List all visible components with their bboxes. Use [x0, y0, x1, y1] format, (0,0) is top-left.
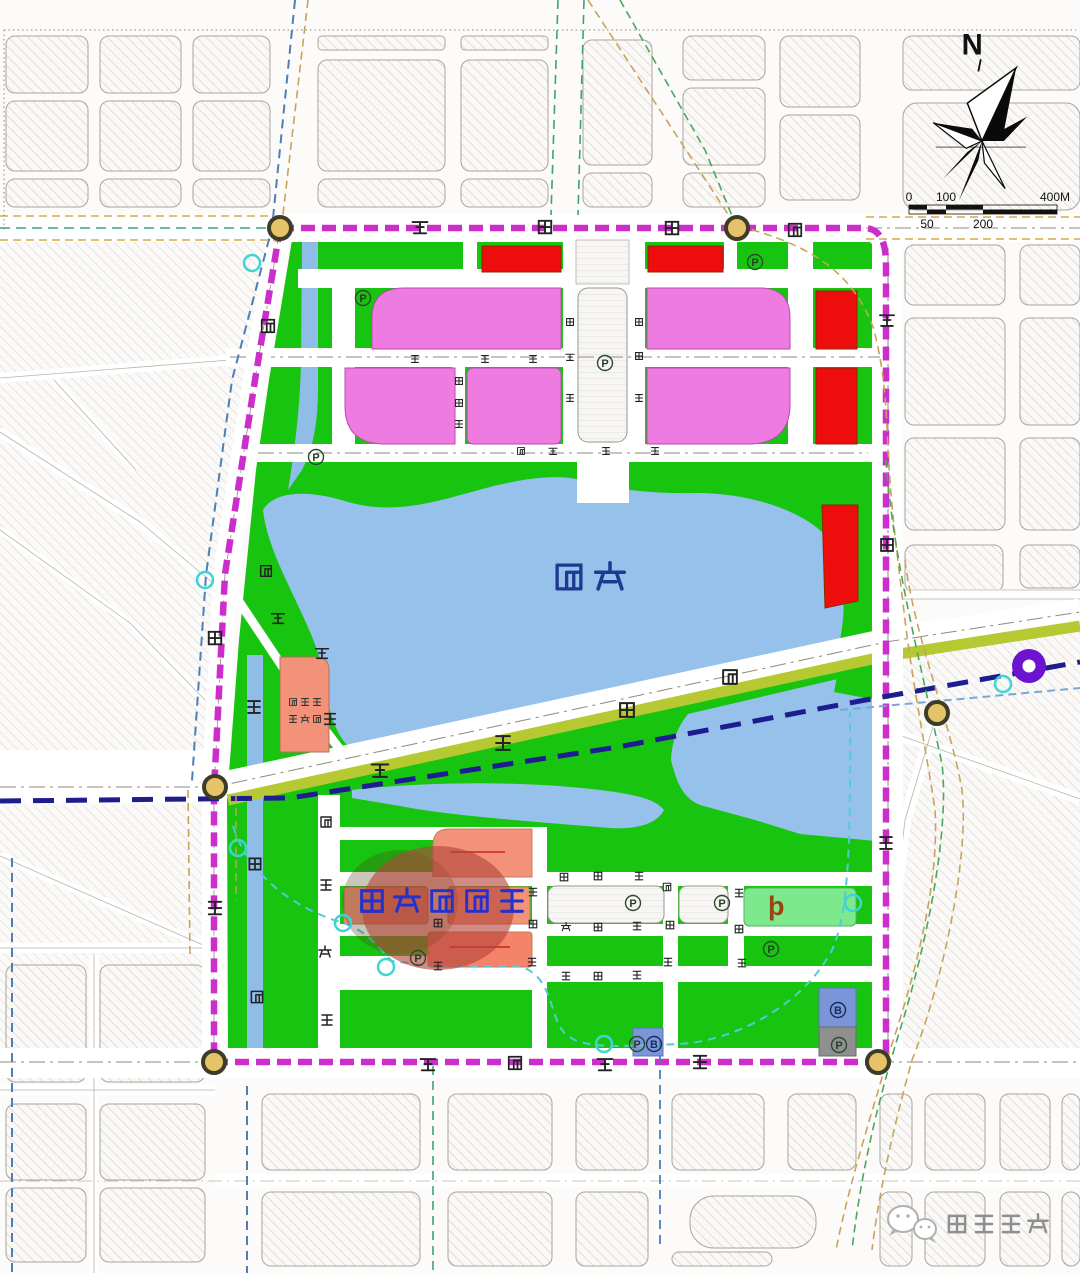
- svg-text:B: B: [834, 1005, 842, 1017]
- svg-text:400M: 400M: [1040, 190, 1070, 204]
- svg-text:P: P: [414, 953, 421, 965]
- svg-text:P: P: [359, 293, 366, 305]
- svg-text:P: P: [601, 358, 608, 370]
- svg-text:P: P: [633, 1039, 640, 1051]
- svg-text:P: P: [767, 944, 774, 956]
- svg-text:B: B: [650, 1039, 658, 1051]
- svg-text:P: P: [835, 1040, 842, 1052]
- svg-text:þ: þ: [768, 891, 785, 921]
- svg-text:100: 100: [936, 190, 956, 204]
- svg-text:0: 0: [906, 190, 913, 204]
- svg-text:N: N: [962, 28, 983, 61]
- svg-text:P: P: [718, 898, 725, 910]
- svg-text:P: P: [751, 257, 758, 269]
- svg-text:200: 200: [973, 217, 993, 231]
- svg-text:50: 50: [920, 217, 934, 231]
- svg-text:P: P: [629, 898, 636, 910]
- svg-text:P: P: [312, 452, 319, 464]
